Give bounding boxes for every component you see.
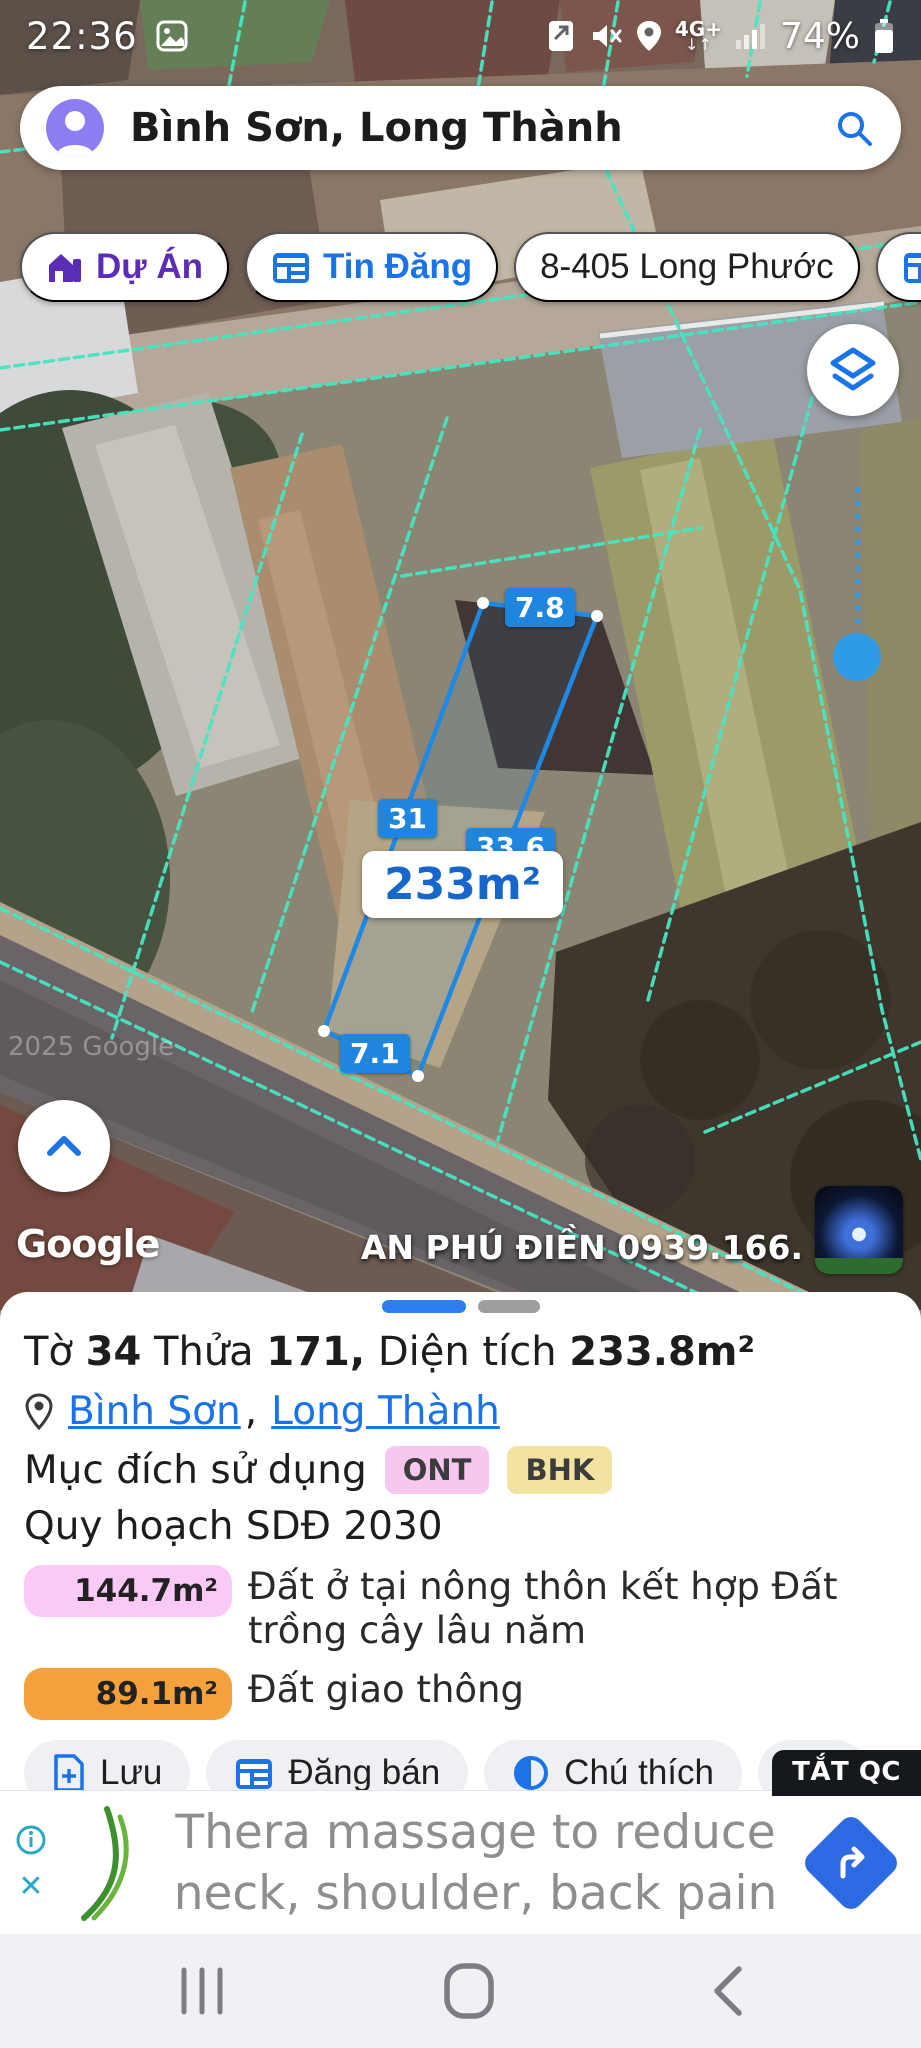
edge-length-top: 7.8 [505, 588, 575, 627]
search-bar[interactable]: Bình Sơn, Long Thành [20, 86, 901, 170]
google-logo: Google [16, 1222, 159, 1266]
status-bar: 22:36 4G+ ↓↑ 74% [0, 0, 921, 72]
land-use-area-badge: 144.7m² [24, 1565, 232, 1617]
search-icon[interactable] [833, 107, 875, 149]
chip-address[interactable]: 8-405 Long Phước [514, 232, 860, 302]
edge-length-left: 31 [378, 799, 437, 838]
ad-copy[interactable]: Thera massage to reduce neck, shoulder, … [142, 1802, 809, 1924]
chip-du-an[interactable]: Dự Án [20, 232, 229, 302]
land-code-badge-ont[interactable]: ONT [385, 1446, 490, 1494]
battery-icon [873, 18, 895, 54]
contrast-icon [512, 1754, 550, 1792]
thumbnail-grass [815, 1258, 903, 1274]
chip-tin-dang[interactable]: Tin Đăng [245, 232, 498, 302]
save-doc-plus-icon [52, 1753, 86, 1793]
land-use-row: 89.1m² Đất giao thông [24, 1668, 897, 1720]
ad-info-icon[interactable] [15, 1824, 47, 1856]
home-button[interactable] [435, 1960, 503, 2022]
agent-overlay-text: AN PHÚ ĐIỀN 0939.166. [361, 1228, 803, 1267]
screenshot-icon [546, 19, 576, 53]
page-dot-active[interactable] [382, 1300, 466, 1313]
imagery-credit: 2025 Google [8, 1032, 174, 1062]
gallery-notification-icon [156, 20, 188, 52]
page-dot-inactive[interactable] [478, 1300, 540, 1313]
clock: 22:36 [26, 15, 138, 58]
ad-controls: ✕ [0, 1824, 62, 1902]
parcel-info-sheet: Tờ 34 Thửa 171, Diện tích 233.8m² Bình S… [0, 1292, 921, 1792]
satellite-map[interactable] [0, 0, 921, 1310]
location-pin-icon [636, 20, 662, 52]
mute-icon [589, 20, 623, 52]
turn-right-arrow-icon [830, 1842, 872, 1884]
land-use-row: 144.7m² Đất ở tại nông thôn kết hợp Đất … [24, 1565, 897, 1652]
land-code-badge-bhk[interactable]: BHK [507, 1446, 612, 1494]
ad-cta-arrow[interactable] [800, 1812, 902, 1914]
listing-card-icon [902, 249, 921, 285]
ward-link[interactable]: Bình Sơn [68, 1389, 241, 1434]
edge-length-bottom: 7.1 [340, 1034, 410, 1073]
listing-card-icon [234, 1755, 274, 1791]
filter-chips: Dự Án Tin Đăng 8-405 Long Phước 1. [20, 232, 921, 302]
parcel-area-label: 233m² [362, 851, 563, 918]
account-avatar[interactable] [46, 99, 104, 157]
pin-outline-icon [24, 1393, 54, 1431]
purpose-row: Mục đích sử dụng ONT BHK [24, 1446, 897, 1494]
recents-button[interactable] [170, 1965, 234, 2017]
project-house-icon [46, 249, 84, 285]
dismiss-ad-button[interactable]: TẮT QC [772, 1750, 921, 1796]
location-row: Bình Sơn, Long Thành [24, 1389, 897, 1434]
back-button[interactable] [703, 1962, 751, 2020]
land-use-description: Đất ở tại nông thôn kết hợp Đất trồng câ… [248, 1565, 897, 1652]
parcel-title: Tờ 34 Thửa 171, Diện tích 233.8m² [24, 1329, 897, 1375]
listing-card-icon [271, 249, 311, 285]
ad-close-icon[interactable]: ✕ [18, 1872, 43, 1902]
phone-screen: 22:36 4G+ ↓↑ 74% [0, 0, 921, 2048]
land-use-area-badge: 89.1m² [24, 1668, 232, 1720]
ad-banner[interactable]: ✕ Thera massage to reduce neck, shoulder… [0, 1790, 921, 1935]
android-navbar [0, 1934, 921, 2048]
purpose-label: Mục đích sử dụng [24, 1448, 367, 1493]
sheet-pagination[interactable] [24, 1300, 897, 1313]
search-input[interactable]: Bình Sơn, Long Thành [130, 105, 833, 151]
battery-percent: 74% [780, 16, 860, 57]
layers-button[interactable] [807, 324, 899, 416]
chevron-up-icon [42, 1131, 86, 1161]
district-link[interactable]: Long Thành [271, 1389, 500, 1434]
agent-ad-thumbnail[interactable] [815, 1186, 903, 1274]
ad-logo-swoosh [62, 1803, 142, 1923]
network-4g-icon: 4G+ ↓↑ [675, 20, 722, 52]
zoning-plan-label: Quy hoạch SDĐ 2030 [24, 1504, 897, 1549]
signal-bars-icon [735, 22, 767, 50]
land-use-description: Đất giao thông [248, 1668, 524, 1712]
chip-more-listing[interactable]: 1. [876, 232, 921, 302]
layers-icon [825, 344, 881, 396]
collapse-sheet-button[interactable] [18, 1100, 110, 1192]
